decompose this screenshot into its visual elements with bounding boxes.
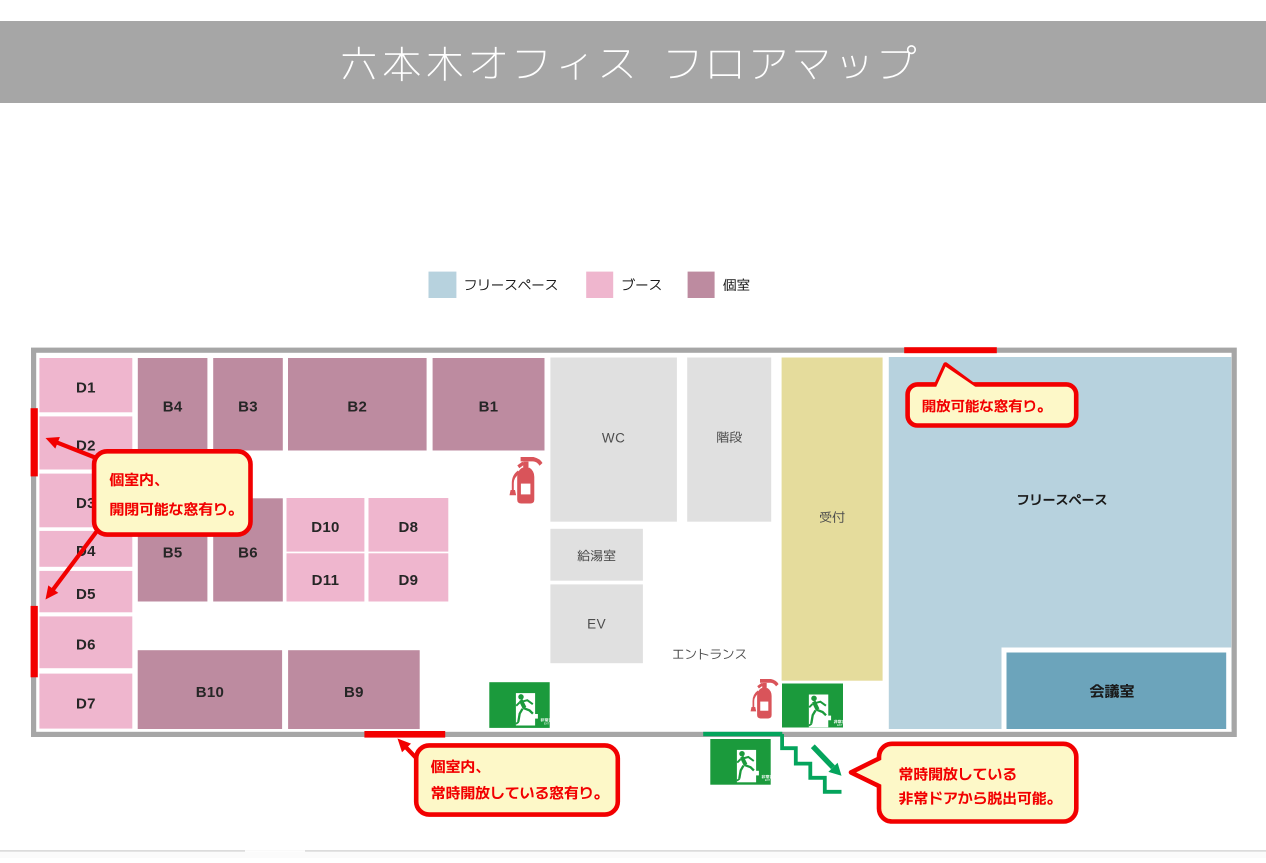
svg-text:D8: D8 [399,519,419,536]
svg-text:B4: B4 [163,399,183,416]
svg-text:WC: WC [602,431,626,446]
svg-text:B1: B1 [479,399,499,416]
svg-text:EXIT: EXIT [765,779,771,782]
svg-text:B2: B2 [347,399,367,416]
svg-text:EXIT: EXIT [837,724,843,727]
svg-text:D6: D6 [76,637,96,654]
svg-text:D1: D1 [76,380,96,397]
svg-text:D9: D9 [399,572,419,589]
svg-text:D11: D11 [312,572,340,589]
svg-text:D7: D7 [76,696,96,713]
svg-text:B5: B5 [163,544,183,561]
svg-text:D10: D10 [311,519,339,536]
svg-text:B6: B6 [238,544,258,561]
svg-text:D5: D5 [76,586,96,603]
svg-text:B9: B9 [344,684,364,701]
svg-text:EV: EV [587,617,606,632]
svg-text:EXIT: EXIT [544,722,550,725]
svg-text:B10: B10 [196,684,224,701]
svg-text:B3: B3 [238,399,258,416]
